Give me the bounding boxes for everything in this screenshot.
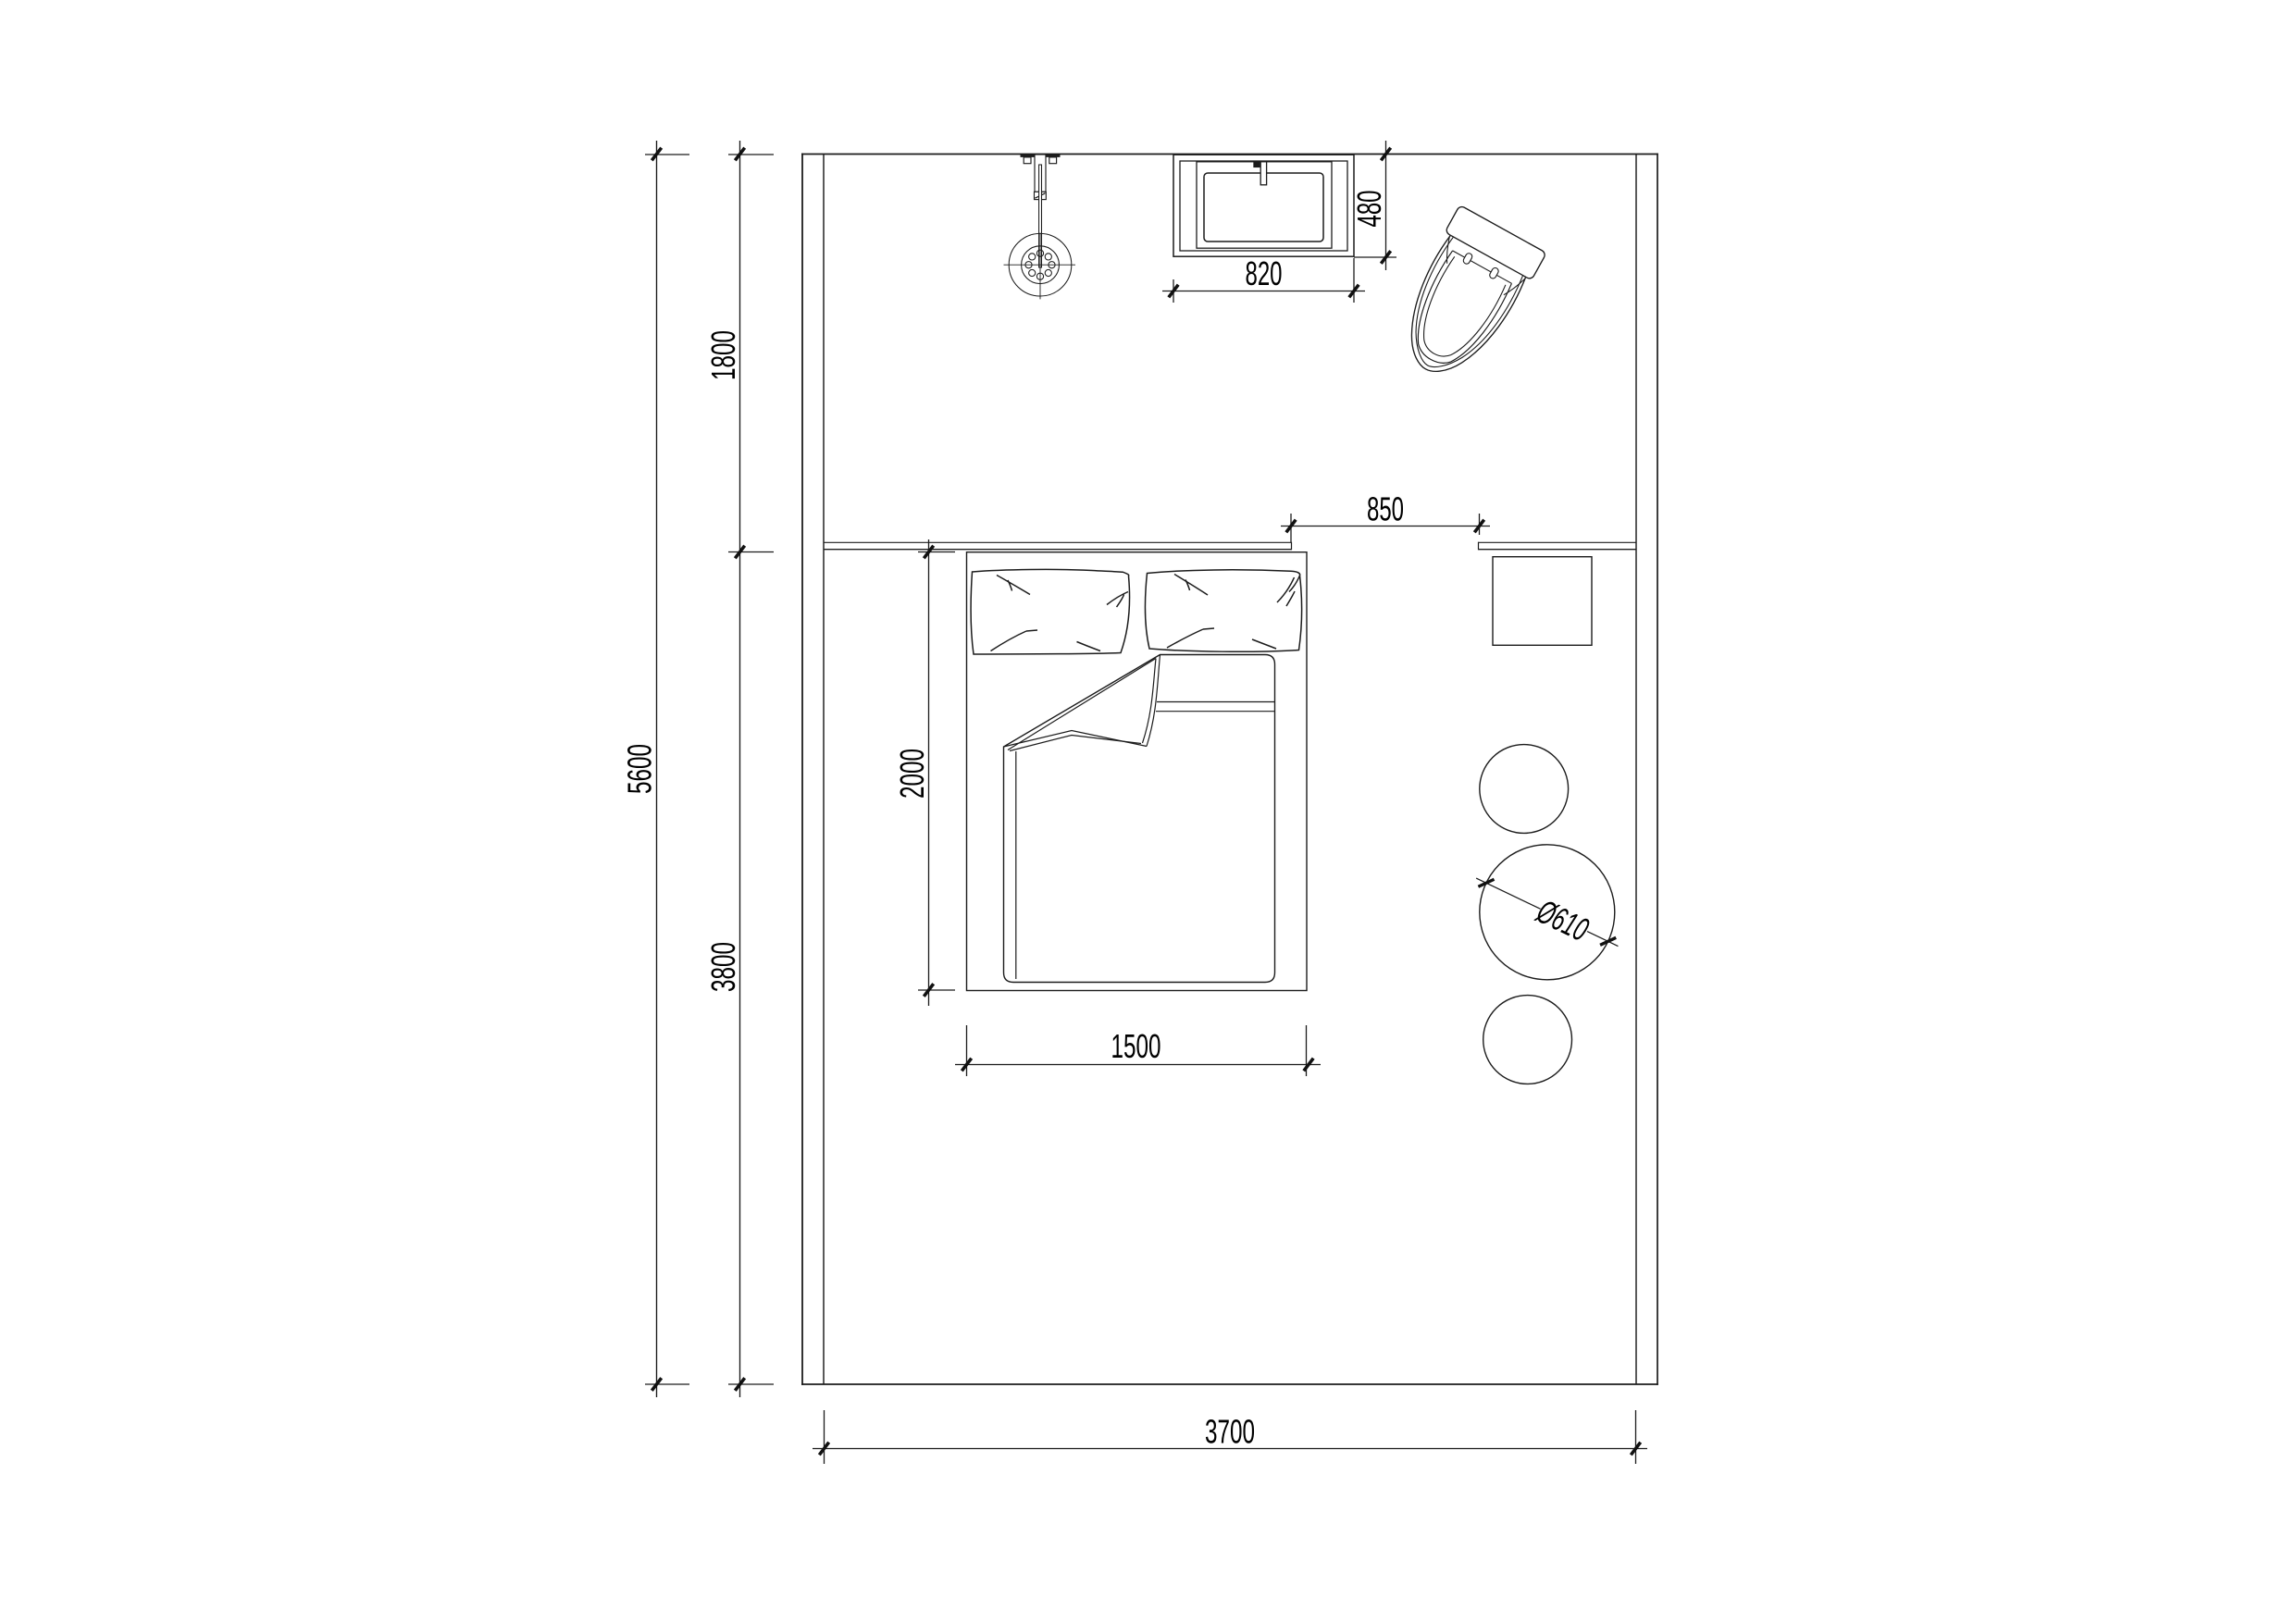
svg-text:2000: 2000	[893, 749, 931, 799]
svg-text:480: 480	[1350, 191, 1388, 228]
svg-text:3700: 3700	[1205, 1413, 1255, 1451]
svg-text:1500: 1500	[1111, 1027, 1161, 1065]
svg-text:850: 850	[1367, 490, 1404, 528]
svg-text:1800: 1800	[704, 330, 742, 380]
svg-text:820: 820	[1246, 254, 1283, 292]
svg-text:3800: 3800	[704, 942, 742, 992]
svg-text:5600: 5600	[621, 744, 659, 794]
